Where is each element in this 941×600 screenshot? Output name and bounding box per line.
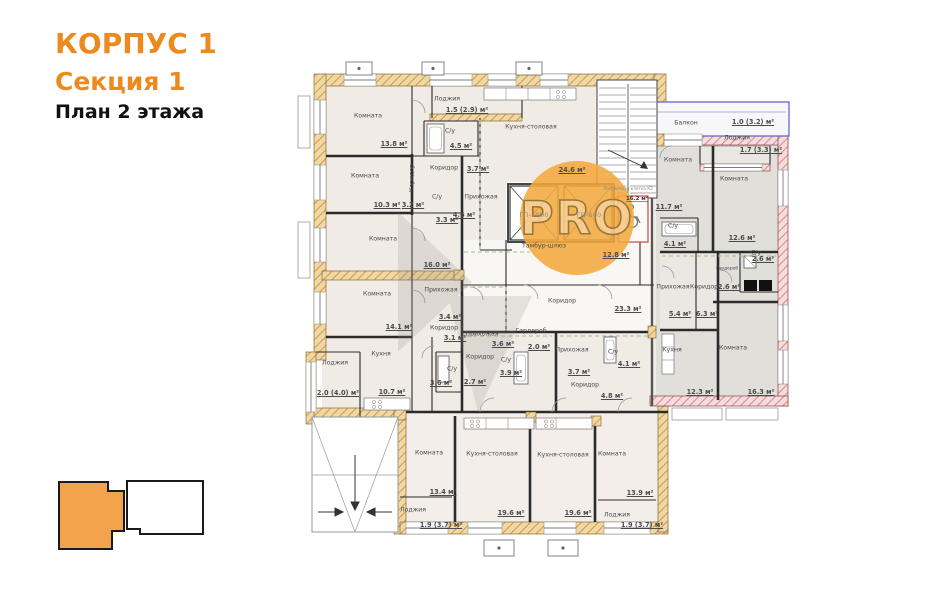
section-key-inactive: [127, 481, 203, 534]
section-key-active: [59, 482, 124, 549]
floor-plan-page: КОРПУС 1 Секция 1 План 2 этажа: [0, 0, 941, 600]
section-key: [0, 0, 941, 600]
